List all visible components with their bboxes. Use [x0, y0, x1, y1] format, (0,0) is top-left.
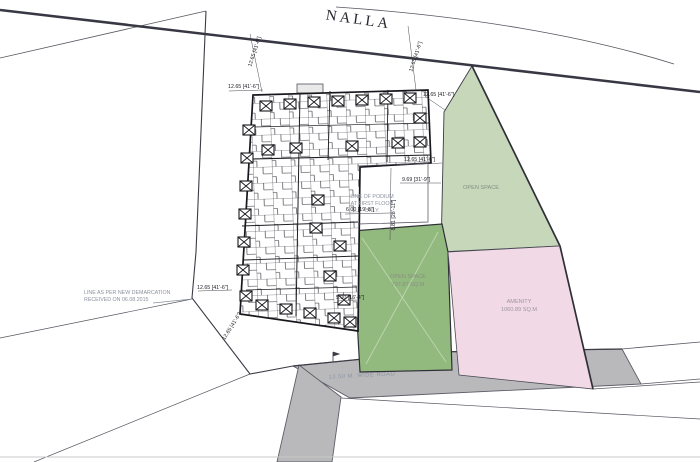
- dim-right-lower: 9.69 [31'-9"]: [402, 177, 431, 183]
- site-plan-canvas: 13.50 M. WIDE ROAD OPEN SPACE OPEN SPACE…: [0, 0, 700, 462]
- open-space-mid-label: OPEN SPACE: [390, 274, 426, 280]
- dim-top-right: 12.65 [41'-6"]: [423, 92, 455, 98]
- dim-podium-vertical: 8.81 [28'-11"]: [391, 199, 397, 230]
- amenity-area-value: 1060.89 SQ.M: [501, 307, 537, 313]
- podium-note-line1: LINE OF PODIUM: [350, 194, 393, 200]
- open-space-right-area: OPEN SPACE: [441, 66, 560, 252]
- demarcation-note-line2: RECEIVED ON 06.08.2015: [84, 297, 149, 303]
- nalla-title: NALLA: [325, 8, 392, 33]
- amenity-area: AMENITY 1060.89 SQ.M: [448, 246, 593, 389]
- site-plan-page: 13.50 M. WIDE ROAD OPEN SPACE OPEN SPACE…: [0, 0, 700, 462]
- dim-podium-horizontal: 6.00 [19'-8"]: [346, 207, 375, 213]
- dim-top-left: 12.65 [41'-6"]: [228, 84, 260, 90]
- amenity-label: AMENITY: [507, 299, 532, 305]
- open-space-mid-area: OPEN SPACE 797.87 SQ.M: [352, 224, 452, 372]
- dim-open-space-offset: 5.00 [16'-4"]: [336, 295, 365, 301]
- entrance-canopy: [297, 84, 323, 93]
- demarcation-leader-line: [153, 299, 192, 303]
- survey-marker: [333, 352, 339, 362]
- open-space-right-label: OPEN SPACE: [463, 185, 499, 191]
- dim-bottom-left: 12.65 [41'-6"]: [197, 285, 229, 291]
- dim-top-mid-rotated: 12.65 [41'-6"]: [408, 40, 423, 72]
- demarcation-note-line1: LINE AS PER NEW DEMARCATION: [84, 290, 171, 296]
- dim-right-upper: 12.65 [41'-6"]: [404, 157, 436, 163]
- demarcation-note: LINE AS PER NEW DEMARCATION RECEIVED ON …: [84, 290, 192, 303]
- open-space-mid-area-value: 797.87 SQ.M: [392, 282, 425, 288]
- dim-bottom-left-rotated: 12.65 [41'-6"]: [221, 311, 243, 341]
